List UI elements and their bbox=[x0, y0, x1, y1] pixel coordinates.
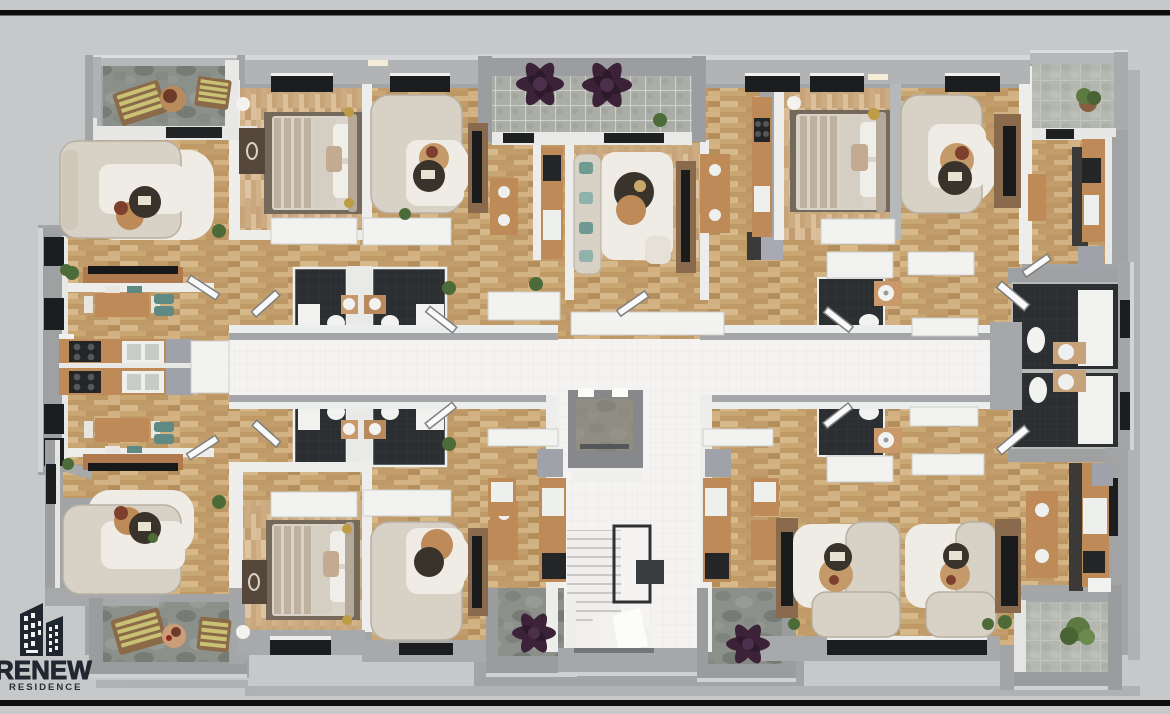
svg-text:RENEW: RENEW bbox=[0, 655, 92, 685]
svg-text:RESIDENCE: RESIDENCE bbox=[9, 682, 82, 693]
